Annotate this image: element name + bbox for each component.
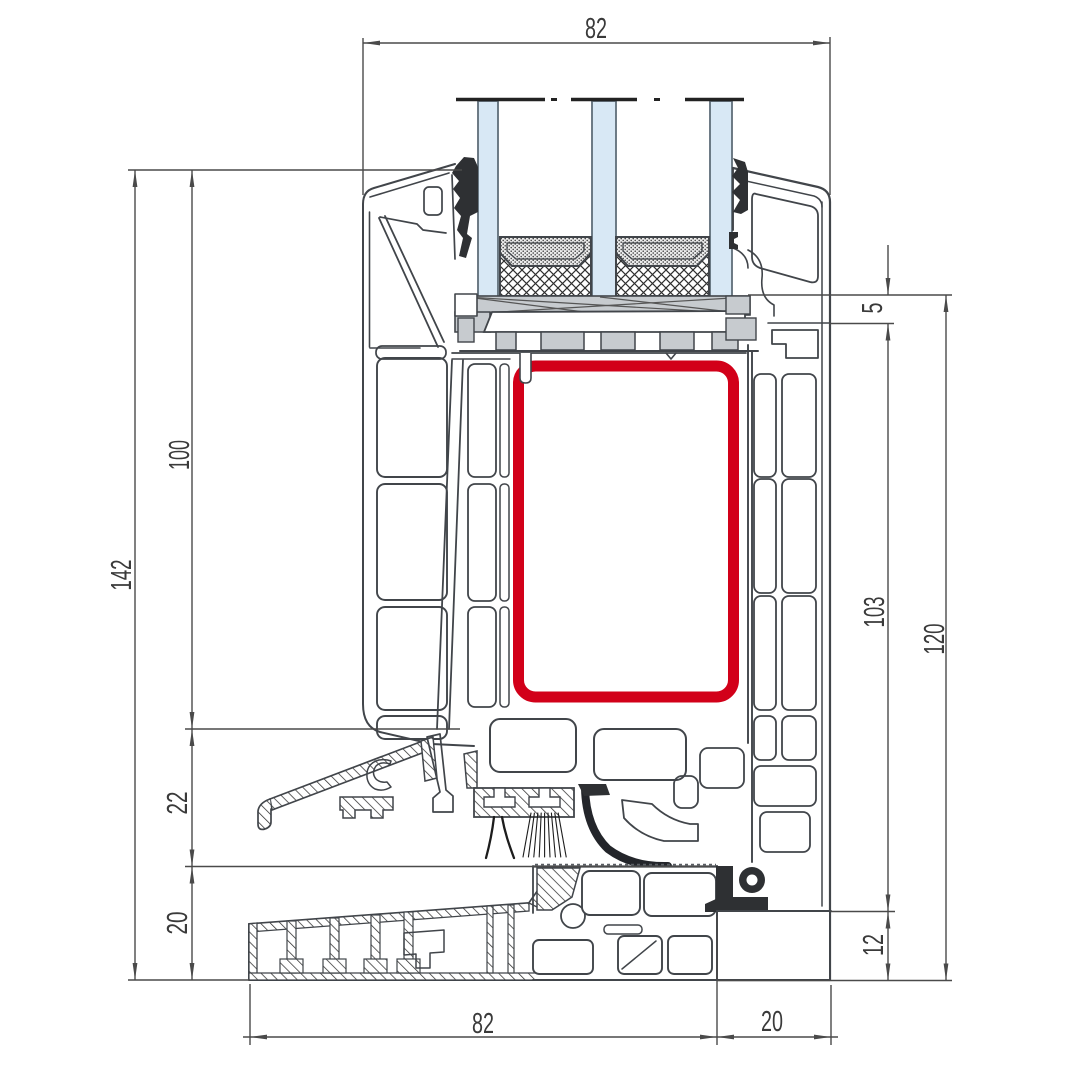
svg-text:142: 142 xyxy=(106,560,138,591)
svg-text:20: 20 xyxy=(761,1006,783,1038)
svg-text:12: 12 xyxy=(858,934,890,956)
svg-text:103: 103 xyxy=(859,597,891,628)
svg-text:5: 5 xyxy=(857,303,889,314)
svg-text:100: 100 xyxy=(164,440,196,470)
svg-text:82: 82 xyxy=(472,1008,494,1040)
svg-text:22: 22 xyxy=(162,792,194,815)
svg-text:20: 20 xyxy=(162,912,194,935)
svg-text:82: 82 xyxy=(585,13,607,45)
svg-text:120: 120 xyxy=(919,624,951,655)
